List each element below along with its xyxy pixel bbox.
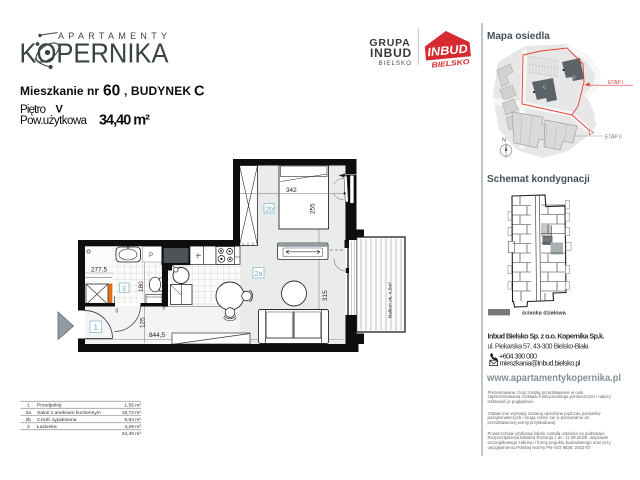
svg-text:C: C	[194, 84, 205, 100]
svg-text:34,40 m²: 34,40 m²	[122, 431, 142, 437]
svg-text:www.apartamentykopernika.pl: www.apartamentykopernika.pl	[486, 372, 621, 384]
svg-text:C: C	[543, 85, 546, 90]
svg-text:ETAP I: ETAP I	[608, 80, 623, 86]
svg-text:2: 2	[197, 254, 200, 260]
svg-text:2b: 2b	[265, 206, 273, 213]
svg-text:180: 180	[138, 281, 145, 292]
svg-text:Balkon ok. 4,5m²: Balkon ok. 4,5m²	[388, 282, 394, 318]
svg-text:D: D	[573, 75, 576, 80]
svg-text:1: 1	[27, 403, 30, 409]
svg-text:Mieszkanie nr: Mieszkanie nr	[20, 84, 99, 98]
svg-text:Część sypialniana: Część sypialniana	[37, 417, 77, 423]
svg-text:Inbud Bielsko Sp. z o.o. Koper: Inbud Bielsko Sp. z o.o. Kopernika Sp.k.	[488, 332, 605, 341]
svg-text:BIELSKO: BIELSKO	[379, 60, 412, 67]
svg-text:315: 315	[322, 290, 329, 301]
svg-text:0: 0	[116, 309, 119, 315]
svg-text:, BUDYNEK: , BUDYNEK	[124, 84, 191, 98]
svg-text:INBUD: INBUD	[370, 46, 412, 60]
svg-text:ETAP II: ETAP II	[605, 134, 622, 140]
svg-text:Salon z aneksem kuchennym: Salon z aneksem kuchennym	[37, 410, 101, 416]
svg-text:342: 342	[286, 187, 297, 194]
svg-text:Łazienka: Łazienka	[37, 424, 57, 430]
svg-text:60: 60	[103, 83, 120, 100]
svg-text:P: P	[149, 253, 153, 259]
svg-text:Pow.użytkowa: Pow.użytkowa	[20, 115, 88, 127]
svg-text:Schemat kondygnacji: Schemat kondygnacji	[487, 174, 590, 185]
svg-text:844,5: 844,5	[149, 332, 165, 339]
svg-text:277,5: 277,5	[91, 267, 107, 274]
svg-text:4,29 m²: 4,29 m²	[124, 424, 141, 430]
svg-text:2a: 2a	[255, 271, 263, 278]
svg-text:mieszkania@inbud.bielsko.pl: mieszkania@inbud.bielsko.pl	[500, 359, 581, 368]
svg-text:3: 3	[27, 424, 30, 430]
svg-text:1: 1	[94, 323, 99, 332]
svg-text:V: V	[56, 104, 64, 116]
svg-text:Mapa osiedla: Mapa osiedla	[487, 31, 550, 42]
svg-text:3: 3	[122, 286, 126, 293]
svg-text:19,72 m²: 19,72 m²	[122, 410, 142, 416]
svg-text:Przedpokój: Przedpokój	[37, 403, 61, 409]
svg-text:255: 255	[310, 203, 317, 214]
svg-text:2a: 2a	[26, 410, 32, 416]
svg-text:N: N	[502, 138, 506, 144]
svg-text:125: 125	[140, 317, 147, 328]
svg-text:ul. Piekarska 57, 43-300 Biels: ul. Piekarska 57, 43-300 Bielsko-Biała	[488, 342, 589, 351]
svg-text:34,40 m²: 34,40 m²	[99, 113, 150, 129]
svg-text:ścianka działowa: ścianka działowa	[522, 311, 567, 317]
svg-text:2b: 2b	[26, 417, 32, 423]
svg-text:KOPERNIKA: KOPERNIKA	[20, 38, 169, 69]
svg-text:1,55 m²: 1,55 m²	[124, 403, 141, 409]
svg-text:8,84 m²: 8,84 m²	[124, 417, 141, 423]
